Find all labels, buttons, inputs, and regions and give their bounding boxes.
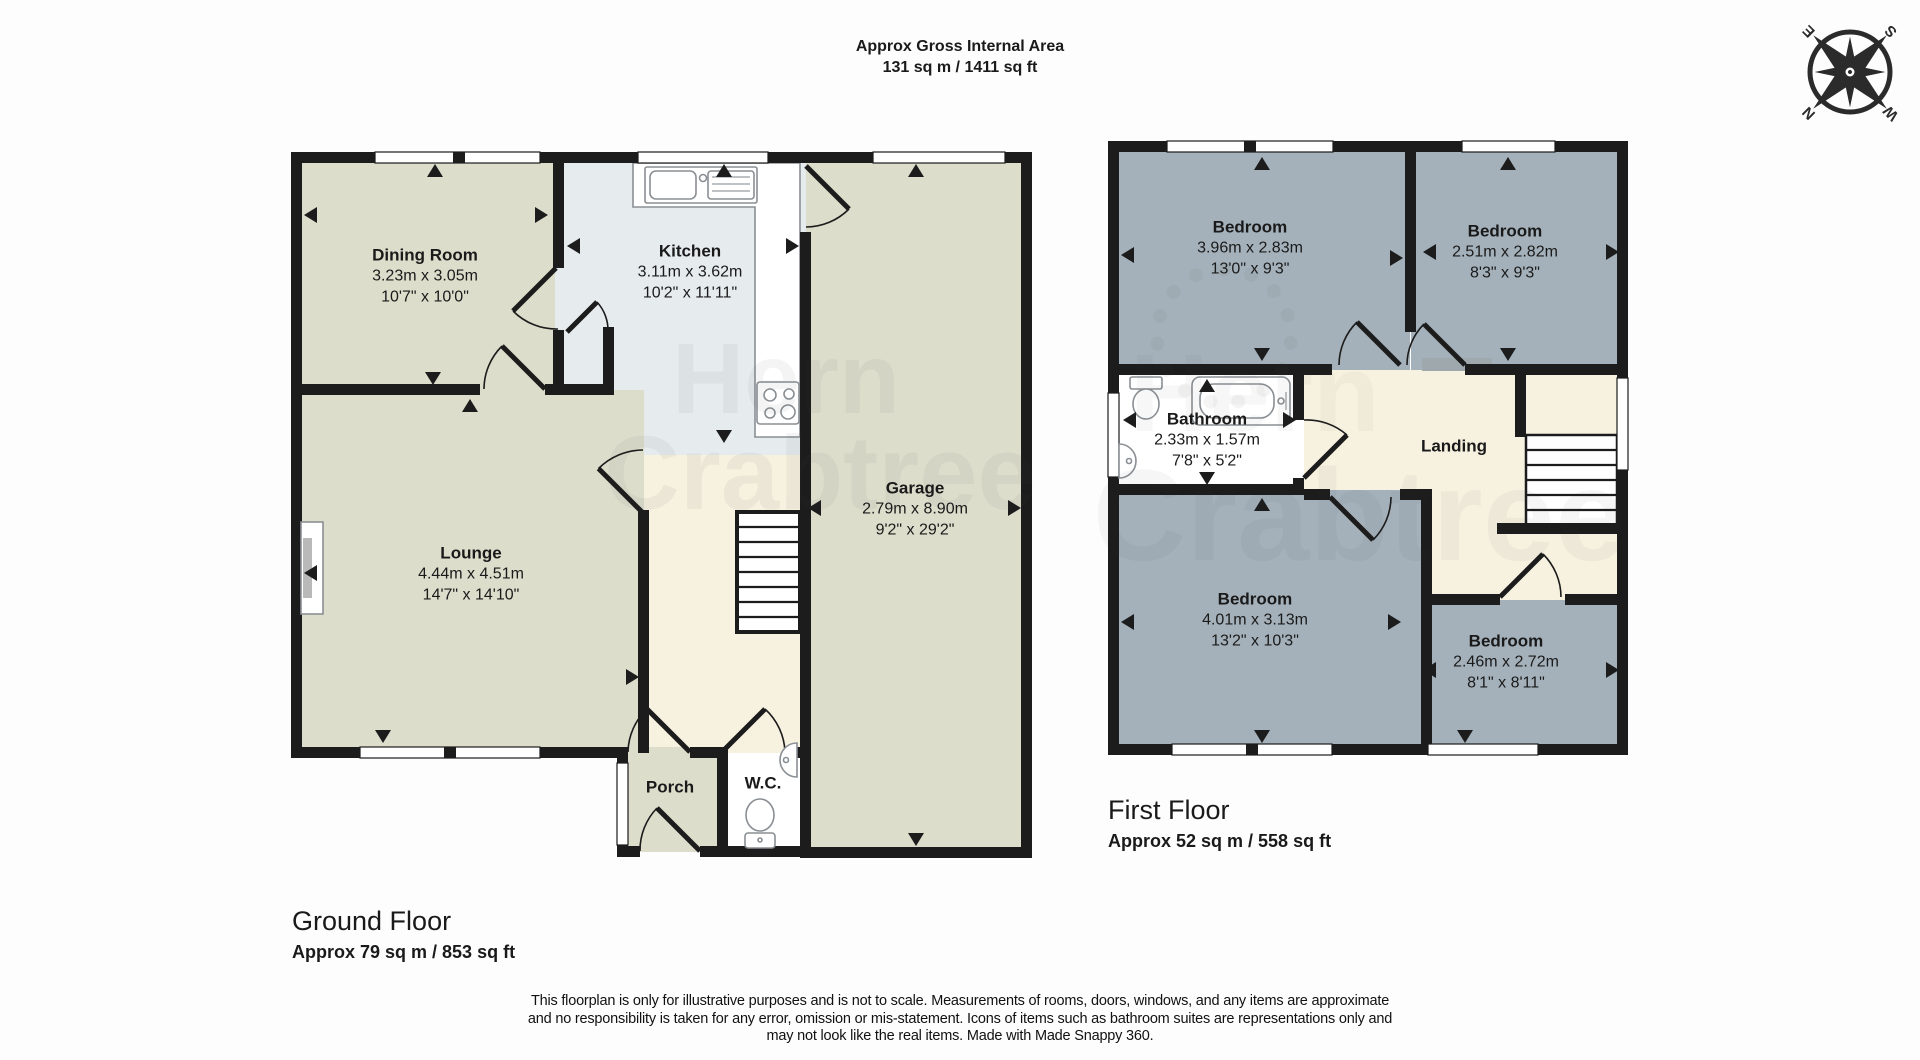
ground-floor-title: Ground Floor Approx 79 sq m / 853 sq ft <box>292 905 515 967</box>
porch-floor <box>617 747 717 852</box>
room-label-landing: Landing <box>1421 436 1487 457</box>
ground-floor-stairs <box>737 512 800 632</box>
room-label-lounge: Lounge 4.44m x 4.51m 14'7" x 14'10" <box>418 543 524 606</box>
disclaimer-line1: This floorplan is only for illustrative … <box>0 993 1920 1011</box>
floorplan-page: Approx Gross Internal Area 131 sq m / 14… <box>0 0 1920 1060</box>
stairs-window <box>1617 378 1628 470</box>
disclaimer-text: This floorplan is only for illustrative … <box>0 993 1920 1046</box>
compass-icon: N E S W <box>1758 0 1920 165</box>
hob-icon <box>757 382 799 424</box>
room-label-bedroom2: Bedroom 2.51m x 2.82m 8'3" x 9'3" <box>1452 221 1558 284</box>
room-label-bedroom4: Bedroom 2.46m x 2.72m 8'1" x 8'11" <box>1453 631 1559 694</box>
porch-window <box>617 763 628 845</box>
room-label-dining: Dining Room 3.23m x 3.05m 10'7" x 10'0" <box>372 245 478 308</box>
disclaimer-line3: may not look like the real items. Made w… <box>0 1028 1920 1046</box>
room-label-porch: Porch <box>646 777 694 798</box>
first-floor-title: First Floor Approx 52 sq m / 558 sq ft <box>1108 794 1331 856</box>
garage-window <box>873 152 1005 163</box>
sink-icon <box>645 167 757 203</box>
room-label-garage: Garage 2.79m x 8.90m 9'2" x 29'2" <box>862 478 968 541</box>
disclaimer-line2: and no responsibility is taken for any e… <box>0 1011 1920 1029</box>
room-label-wc: W.C. <box>745 773 782 794</box>
room-label-kitchen: Kitchen 3.11m x 3.62m 10'2" x 11'11" <box>638 241 743 304</box>
room-label-bedroom3: Bedroom 4.01m x 3.13m 13'2" x 10'3" <box>1202 589 1308 652</box>
bedroom4-window <box>1428 744 1538 755</box>
room-label-bedroom1: Bedroom 3.96m x 2.83m 13'0" x 9'3" <box>1197 217 1303 280</box>
gross-internal-area-header: Approx Gross Internal Area 131 sq m / 14… <box>0 36 1920 78</box>
bathroom-window <box>1108 393 1119 477</box>
room-label-bathroom: Bathroom 2.33m x 1.57m 7'8" x 5'2" <box>1154 409 1260 472</box>
kitchen-window <box>638 152 768 163</box>
bedroom2-window <box>1462 141 1555 152</box>
header-line2: 131 sq m / 1411 sq ft <box>0 57 1920 78</box>
header-line1: Approx Gross Internal Area <box>0 36 1920 57</box>
wc-toilet-icon <box>745 799 775 848</box>
fireplace <box>301 522 323 614</box>
